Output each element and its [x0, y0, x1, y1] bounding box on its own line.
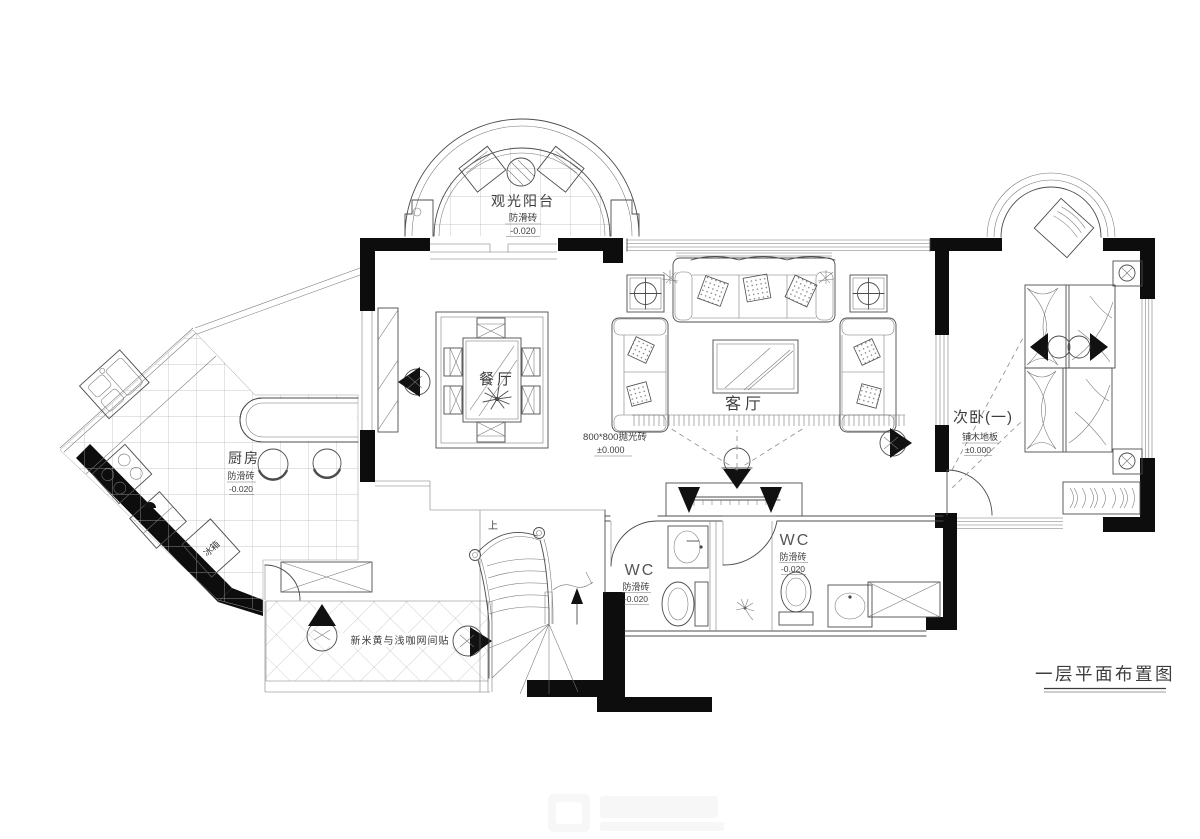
- living-label: 客厅: [725, 395, 765, 413]
- wc-left-level: -0.020: [624, 594, 648, 604]
- tv-sightlines: [670, 428, 804, 470]
- wc-right-toilet: [779, 572, 813, 625]
- corridor: 新米黄与浅咖网间贴: [265, 562, 492, 692]
- dining-radiator: [378, 308, 398, 432]
- balcony-level: -0.020: [510, 226, 536, 236]
- bar-counter: [240, 398, 358, 442]
- wc-left: WC 防滑砖 -0.020: [611, 521, 708, 626]
- rug-fringe: [632, 415, 905, 426]
- sofa-three-seat: [673, 257, 835, 323]
- watermark: [548, 794, 724, 832]
- stair-rail-right: [540, 540, 549, 624]
- wc-left-door: [611, 521, 657, 566]
- bedroom-label: 次卧(一): [953, 409, 1013, 426]
- stair-treads: [487, 559, 549, 614]
- wc-right-door: [723, 521, 777, 565]
- bay-chair: [1034, 198, 1093, 257]
- floor-plan-canvas: 观光阳台 防滑砖 -0.020: [0, 0, 1200, 839]
- nightstand-top: [1113, 261, 1142, 286]
- drawing-title: 一层平面布置图: [1035, 664, 1175, 684]
- elevation-marker-dining: [398, 367, 430, 397]
- bed-1: [1025, 285, 1115, 368]
- plant-right: [818, 270, 834, 284]
- bedroom-right-window: [1142, 299, 1152, 458]
- direction-arrow: [571, 588, 583, 624]
- balcony-door-sill: [430, 244, 557, 259]
- kitchen-label: 厨房: [228, 450, 260, 466]
- shoe-cabinet: [1063, 482, 1140, 514]
- coffee-table: [713, 340, 798, 393]
- wc-left-sink: [668, 526, 708, 568]
- nightstand-bottom: [1113, 449, 1142, 474]
- tv-wall: [666, 428, 804, 516]
- wc-right-level: -0.020: [781, 564, 805, 574]
- stairs-up-label: 上: [488, 520, 498, 532]
- living-top-window: [627, 240, 930, 251]
- kitchen-floor: 防滑砖: [227, 470, 254, 481]
- wc-right-sink: [828, 585, 872, 627]
- bed-2: [1025, 368, 1112, 452]
- bedroom-bottom-window: [957, 518, 1063, 529]
- wc-left-toilet: [662, 582, 708, 626]
- wc-right-floor: 防滑砖: [779, 551, 806, 562]
- dining-left-window: [362, 311, 372, 430]
- kitchen-to-house-wall: [195, 268, 360, 334]
- dining-label: 餐厅: [479, 371, 515, 388]
- title-block: 一层平面布置图: [1035, 664, 1175, 692]
- dining-room: 餐厅 800*800抛光砖 ±0.000: [398, 312, 647, 456]
- floor-plan-drawing: 观光阳台 防滑砖 -0.020: [0, 0, 1200, 839]
- wc-left-label: WC: [625, 562, 656, 579]
- corridor-cabinet: [281, 562, 372, 592]
- corridor-floor-note: 新米黄与浅咖网间贴: [351, 634, 450, 647]
- balcony-label: 观光阳台: [491, 193, 555, 209]
- living-room: 客厅: [612, 253, 912, 458]
- bedroom-door-arc: [947, 470, 992, 515]
- wc-right: WC 防滑砖 -0.020: [723, 521, 940, 631]
- kitchen-door-arc: [265, 565, 300, 600]
- bay-window: [987, 173, 1115, 258]
- bedroom: 次卧(一) 铺木地板 ±0.000: [947, 261, 1142, 515]
- stair-rail-top: [478, 533, 537, 552]
- living-level: ±0.000: [597, 445, 624, 455]
- bedroom-level: ±0.000: [965, 445, 991, 455]
- living-floor-note: 800*800抛光砖: [583, 431, 647, 443]
- balcony-floor-note: 防滑砖: [509, 212, 538, 224]
- elevation-marker-living: [880, 428, 912, 458]
- side-table-left: [627, 275, 664, 312]
- wc-left-floor: 防滑砖: [622, 581, 649, 592]
- bedroom-floor: 铺木地板: [962, 431, 998, 442]
- break-line: [553, 572, 593, 590]
- wc-right-label: WC: [780, 532, 811, 549]
- bedroom-left-window: [936, 335, 948, 425]
- storage-box: [868, 582, 940, 617]
- side-table-right: [850, 275, 887, 312]
- shower-head-symbol: [736, 599, 754, 620]
- kitchen-level: -0.020: [229, 484, 253, 494]
- kitchen: 冰箱 厨房 防滑砖 -0.020: [60, 330, 358, 612]
- kitchen-tile-floor: [60, 330, 358, 612]
